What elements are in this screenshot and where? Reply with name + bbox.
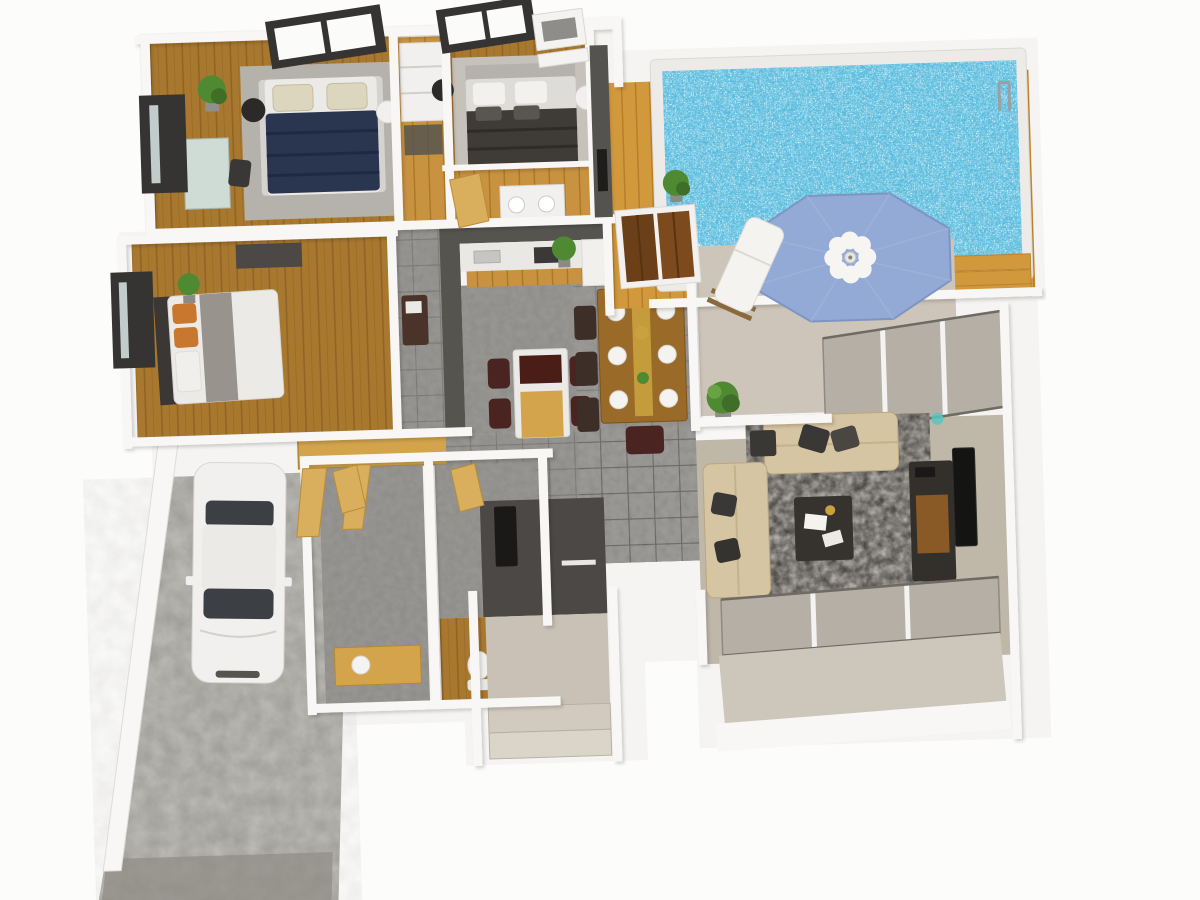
stool [489,398,512,429]
dining-chair-maroon [625,425,664,454]
sink [474,250,500,263]
wall-segment [391,232,397,434]
car [185,462,294,683]
basin [352,656,371,675]
entry-porch [485,613,610,707]
plant-pot [183,295,195,303]
window-frame [139,94,188,193]
console-wood-front [916,495,950,554]
fridge [582,239,605,286]
floor-plan-svg [0,0,1200,900]
bed2-pillow-dark [513,105,539,120]
car-windshield [203,588,273,619]
car-mirror [283,577,292,586]
bed2-pillow-white [515,81,548,104]
dining-chair [575,351,598,386]
plate [659,389,678,408]
stool [487,358,510,389]
plate [608,347,627,366]
wall-segment [542,453,547,621]
plate [658,345,677,364]
porch-step [489,729,612,759]
sofa-pillow [710,492,738,518]
car-roof [202,524,277,591]
chest-item [405,301,421,313]
wall-segment [613,591,618,757]
bed1-pillow [273,84,314,111]
bedroom1-left-window-box [139,94,188,193]
basin [508,197,524,213]
glass-desk [183,138,230,209]
floor-plan-stage [0,0,1200,900]
bed-1 [258,76,386,196]
window-pane [326,14,375,53]
closet-box [404,124,443,155]
vanity-gold [334,645,421,686]
wall-segment [393,36,399,224]
car-mirror [186,576,195,585]
floor-lamp [597,149,608,191]
dining-chair [577,397,600,432]
basin [538,196,554,212]
bed2-pillow-white [473,82,506,105]
window-pane [445,11,486,44]
wall-segment [701,594,703,660]
side-table [750,430,777,457]
console-item [915,467,935,478]
porch-step [488,703,611,733]
car-grille [216,671,260,679]
bed3-pillow-orange [172,303,197,325]
bed2-pillow-dark [475,106,501,121]
dining-chair [574,305,597,340]
desk-chair [228,159,252,188]
entry-device [494,506,518,567]
bed3-pillow-white [175,351,202,393]
window-frame [110,271,155,368]
bedroom-3 [132,236,398,440]
wardrobe [236,243,303,269]
bed1-pillow [327,83,368,110]
bed-2 [465,62,578,173]
table-runner [631,294,653,417]
bed3-pillow-orange [173,327,198,349]
wall-segment [473,595,478,761]
driveway-dark-strip [99,852,335,900]
bed-3 [153,289,284,405]
entry-shelf [562,560,596,566]
tv [952,448,977,547]
bedroom3-left-window-box [110,271,155,368]
wall-segment [695,418,827,422]
window-pane [486,5,526,38]
island-stove [519,355,562,384]
table-papers [804,514,827,531]
wall-segment [445,34,451,222]
car-rear-window [205,500,273,527]
plate [609,391,628,410]
wall-art-frames [532,8,589,67]
island-gold-front [520,391,563,438]
patio-doors [615,204,701,288]
